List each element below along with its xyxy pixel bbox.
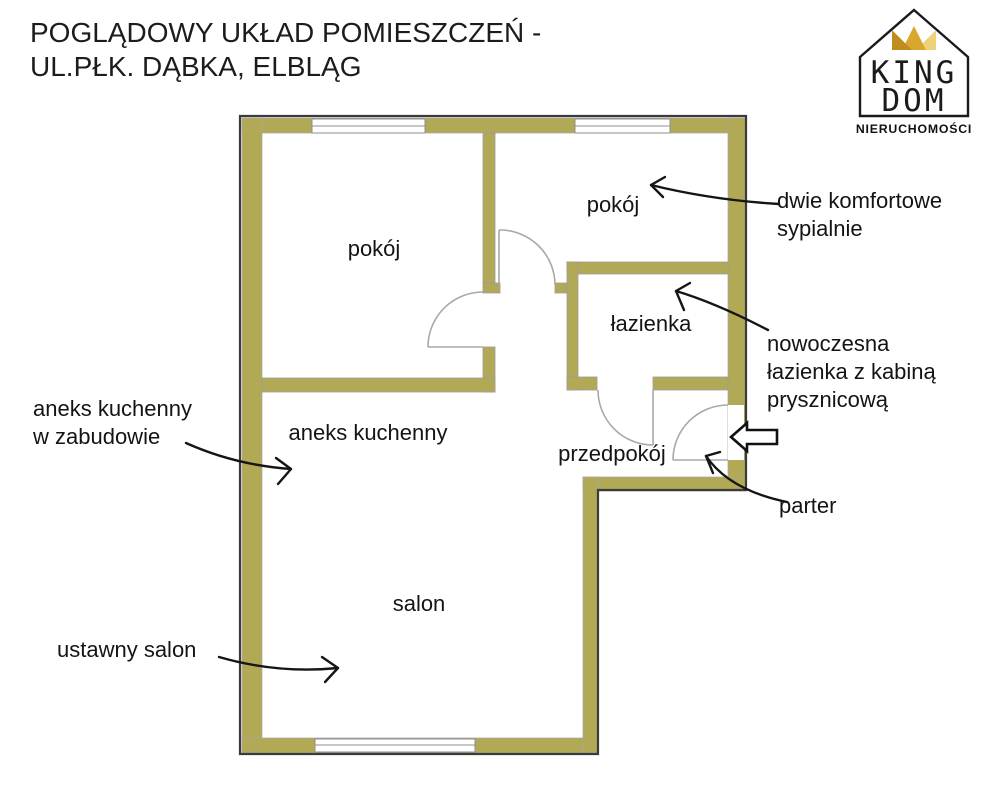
note-bathroom-line2: łazienka z kabiną	[767, 358, 936, 386]
door-bathroom	[598, 390, 653, 445]
arrow-to-room-right	[651, 177, 779, 204]
arrow-to-living-room	[219, 657, 338, 682]
window-room-right	[575, 119, 670, 133]
note-kitchenette: aneks kuchenny w zabudowie	[33, 395, 192, 451]
note-living-room: ustawny salon	[57, 636, 196, 664]
window-living-room	[315, 739, 475, 752]
note-floor-level: parter	[779, 492, 836, 520]
arrow-to-kitchenette	[186, 443, 291, 484]
label-living-room: salon	[393, 591, 446, 616]
note-bedrooms-line2: sypialnie	[777, 215, 942, 243]
note-bedrooms: dwie komfortowe sypialnie	[777, 187, 942, 243]
floorplan-page: POGLĄDOWY UKŁAD POMIESZCZEŃ - UL.PŁK. DĄ…	[0, 0, 982, 800]
door-room-right	[499, 230, 555, 285]
door-room-left	[428, 292, 483, 347]
note-bathroom-line1: nowoczesna	[767, 330, 936, 358]
note-kitchenette-line2: w zabudowie	[33, 423, 192, 451]
label-bathroom: łazienka	[611, 311, 692, 336]
label-hallway: przedpokój	[558, 441, 666, 466]
label-room-left: pokój	[348, 236, 401, 261]
note-bathroom: nowoczesna łazienka z kabiną prysznicową	[767, 330, 936, 414]
interior-walls	[262, 133, 728, 392]
label-room-right: pokój	[587, 192, 640, 217]
note-bathroom-line3: prysznicową	[767, 386, 936, 414]
note-bedrooms-line1: dwie komfortowe	[777, 187, 942, 215]
note-kitchenette-line1: aneks kuchenny	[33, 395, 192, 423]
label-kitchenette: aneks kuchenny	[289, 420, 448, 445]
window-room-left	[312, 119, 425, 133]
